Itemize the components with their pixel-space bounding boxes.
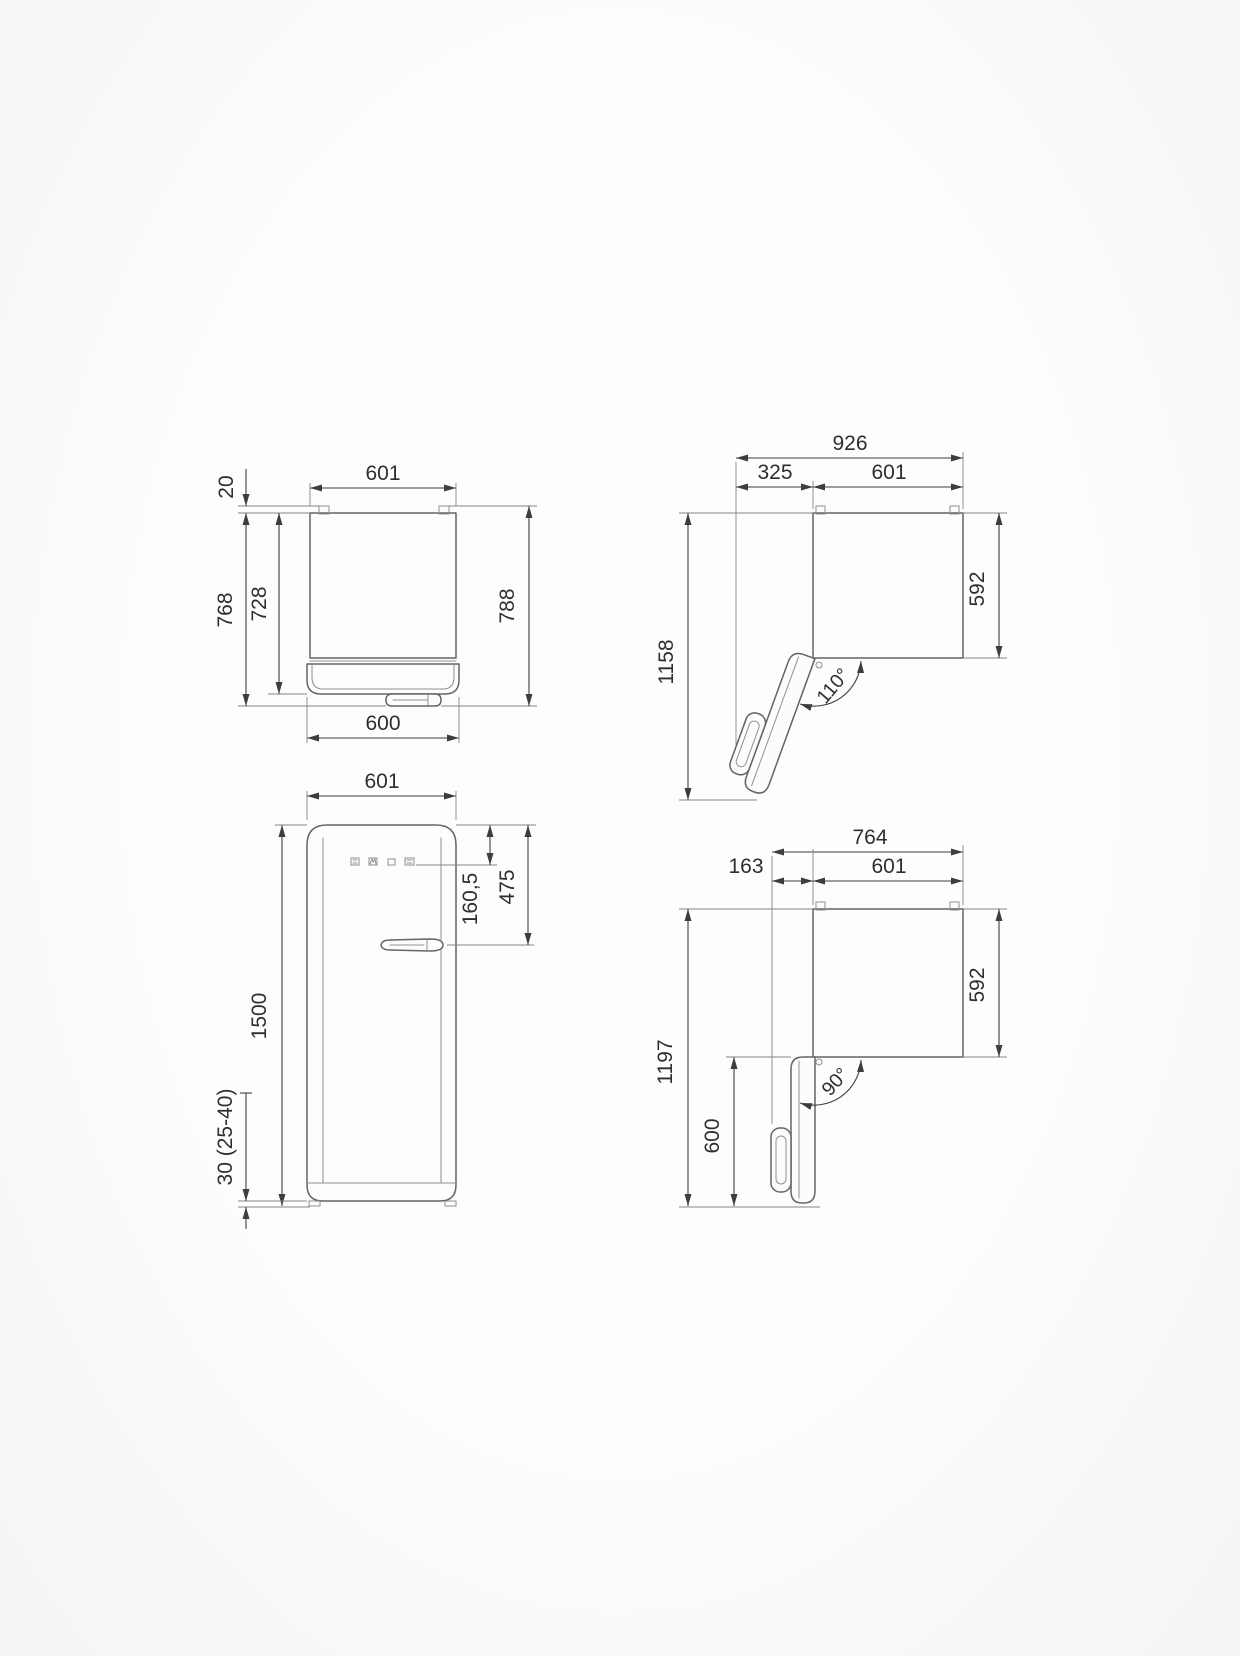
door-open-90 bbox=[771, 1057, 815, 1203]
hinge-pin bbox=[816, 1059, 822, 1065]
dim-label-601-top: 601 bbox=[365, 462, 400, 485]
dim-label-926: 926 bbox=[832, 432, 867, 455]
dim-top-width-601: 601 bbox=[310, 462, 456, 506]
dim-door-projection-163: 163 bbox=[728, 849, 813, 905]
dim-label-1500: 1500 bbox=[248, 993, 271, 1040]
foot-left bbox=[309, 1201, 320, 1206]
dim-label-160-5: 160,5 bbox=[459, 873, 482, 926]
dimension-drawing: 601 20 768 728 788 600 bbox=[0, 0, 1240, 1656]
dim-depth-768: 768 bbox=[214, 513, 386, 706]
panel-icon-1 bbox=[351, 858, 359, 865]
dim-label-1158: 1158 bbox=[655, 639, 678, 684]
dim-label-163: 163 bbox=[728, 855, 763, 878]
fridge-body-top-outline bbox=[813, 909, 963, 1057]
fridge-body-top-outline bbox=[310, 513, 456, 658]
door-inner-line bbox=[312, 664, 454, 689]
dim-body-width-601: 601 bbox=[813, 461, 963, 487]
panel-icon-3 bbox=[388, 859, 395, 865]
dim-body-width-601: 601 bbox=[813, 855, 963, 881]
fridge-front-outline bbox=[307, 825, 456, 1201]
dim-top-to-handle-475: 475 bbox=[496, 825, 528, 945]
dim-label-601-front: 601 bbox=[364, 770, 399, 793]
dim-label-601: 601 bbox=[871, 461, 906, 484]
dim-label-1197: 1197 bbox=[654, 1039, 677, 1084]
view-top-open-90: 764 163 601 1197 592 600 bbox=[654, 826, 1007, 1207]
panel-icon-4 bbox=[405, 858, 414, 865]
dim-hinge-gap-20: 20 bbox=[215, 469, 319, 513]
dim-label-20: 20 bbox=[215, 475, 238, 498]
angle-label-110: 110° bbox=[812, 664, 854, 708]
dim-body-depth-592: 592 bbox=[963, 513, 1007, 658]
hinge-pin bbox=[816, 662, 822, 668]
dim-door-projection-325: 325 bbox=[736, 461, 813, 509]
door-open-110 bbox=[724, 644, 815, 796]
dim-label-768: 768 bbox=[214, 592, 237, 627]
foot-right bbox=[445, 1201, 456, 1206]
view-top-closed: 601 20 768 728 788 600 bbox=[214, 462, 537, 743]
dim-label-728: 728 bbox=[248, 586, 271, 621]
panel-icon-2-glyph bbox=[370, 859, 376, 864]
dim-label-30-25-40: 30 (25-40) bbox=[214, 1089, 237, 1186]
dim-label-601: 601 bbox=[871, 855, 906, 878]
dim-label-592: 592 bbox=[966, 967, 989, 1002]
dim-height-1500: 1500 bbox=[248, 825, 307, 1206]
view-top-open-110: 926 325 601 1158 592 bbox=[655, 432, 1007, 800]
fridge-body-top-outline bbox=[813, 513, 963, 658]
angle-label-90: 90° bbox=[817, 1064, 853, 1101]
dim-label-592: 592 bbox=[966, 571, 989, 606]
dim-front-width-601: 601 bbox=[307, 770, 456, 820]
dimension-drawing-page: 601 20 768 728 788 600 bbox=[0, 0, 1240, 1656]
dim-feet-30: 30 (25-40) bbox=[214, 1089, 310, 1229]
dim-label-600: 600 bbox=[365, 712, 400, 735]
dim-label-325: 325 bbox=[757, 461, 792, 484]
door-handle bbox=[771, 1128, 791, 1192]
dim-label-764: 764 bbox=[852, 826, 887, 849]
control-panel-icons bbox=[351, 858, 414, 865]
door-slab bbox=[791, 1057, 815, 1203]
dim-depth-728: 728 bbox=[248, 513, 307, 694]
view-front: 601 160,5 475 1500 30 (25-40) bbox=[214, 770, 536, 1229]
dim-label-475: 475 bbox=[496, 869, 519, 904]
dim-label-600: 600 bbox=[701, 1118, 724, 1153]
dim-body-depth-592: 592 bbox=[963, 909, 1007, 1057]
dim-label-788: 788 bbox=[496, 588, 519, 623]
